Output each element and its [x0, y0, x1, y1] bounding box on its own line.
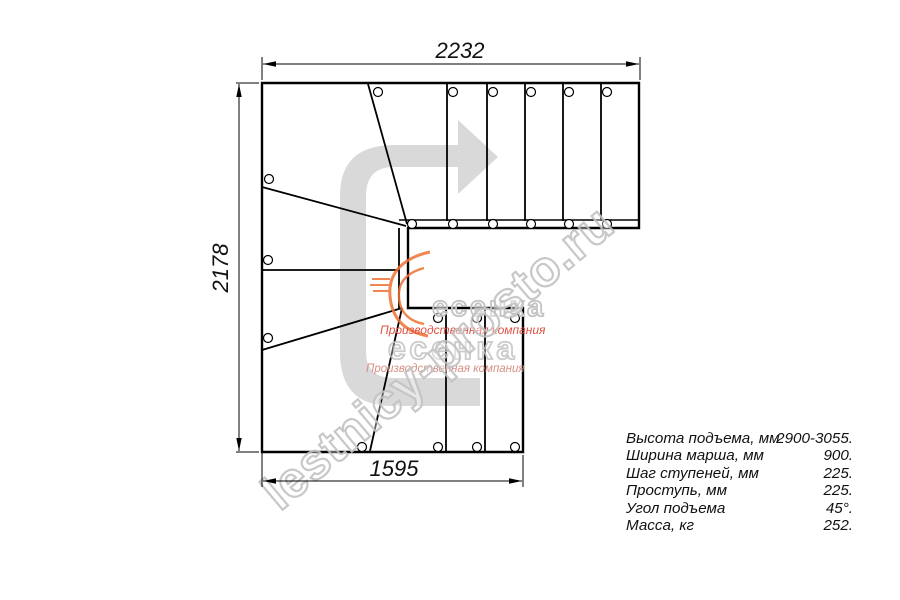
screw-hole [449, 88, 458, 97]
screw-hole [374, 88, 383, 97]
screw-hole [603, 88, 612, 97]
screw-hole [489, 88, 498, 97]
spec-value: 225. [822, 482, 853, 499]
spec-label: Высота подъема, мм [626, 430, 780, 447]
spec-label: Угол подъема [625, 500, 725, 517]
spec-value: 2900-3055. [775, 430, 853, 447]
watermarks: есенка Производственная компания есенка … [251, 195, 624, 521]
dimension-left-label: 2178 [208, 243, 233, 294]
screw-hole [264, 256, 273, 265]
dimension-arrowhead [626, 61, 639, 66]
screw-hole [264, 334, 273, 343]
screw-hole [408, 220, 417, 229]
spec-row: Угол подъема 45°. [625, 500, 853, 517]
dimension-arrowhead [236, 84, 241, 97]
dimension-arrowhead [263, 61, 276, 66]
spec-value: 252. [822, 517, 853, 534]
screw-hole [527, 220, 536, 229]
spec-label: Ширина марша, мм [626, 447, 765, 464]
screw-hole [527, 88, 536, 97]
dimension-bottom-label: 1595 [370, 456, 420, 481]
screw-hole [489, 220, 498, 229]
dimension-top-label: 2232 [435, 38, 485, 63]
dimension-arrowhead [236, 438, 241, 451]
staircase-plan-svg: есенка Производственная компания есенка … [0, 0, 900, 600]
screw-hole [565, 88, 574, 97]
screw-hole [473, 443, 482, 452]
spec-row: Ширина марша, мм 900. [626, 447, 853, 464]
spec-label: Проступь, мм [626, 482, 728, 499]
spec-row: Масса, кг 252. [626, 517, 853, 534]
spec-label: Шаг ступеней, мм [626, 465, 760, 482]
spec-row: Проступь, мм 225. [626, 482, 853, 499]
spec-value: 225. [822, 465, 853, 482]
spec-label: Масса, кг [626, 517, 695, 534]
spec-row: Высота подъема, мм 2900-3055. [626, 430, 853, 447]
watermark-site-text: lestnicy-prosto.ru [251, 195, 624, 521]
staircase-drawing-page: есенка Производственная компания есенка … [0, 0, 900, 600]
spec-value: 45°. [826, 500, 853, 517]
dimension-left: 2178 [208, 83, 259, 452]
spec-value: 900. [823, 447, 853, 464]
screw-hole [449, 220, 458, 229]
screw-hole [265, 175, 274, 184]
spec-table: Высота подъема, мм 2900-3055. Ширина мар… [625, 430, 853, 534]
winder-line [262, 187, 406, 226]
screw-hole [511, 443, 520, 452]
dimension-top: 2232 [262, 38, 640, 80]
spec-row: Шаг ступеней, мм 225. [626, 465, 853, 482]
screw-hole [434, 443, 443, 452]
dimension-arrowhead [509, 478, 522, 483]
